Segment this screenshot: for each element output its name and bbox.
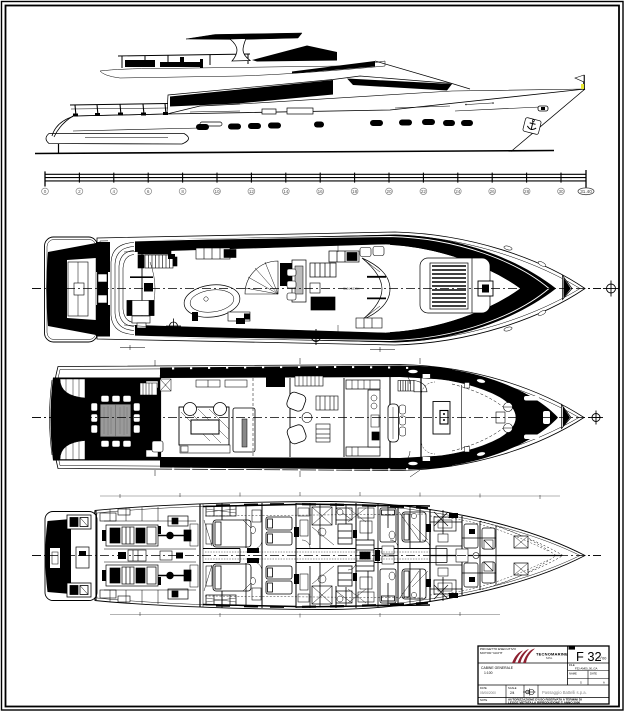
svg-text:FILE: FILE: [569, 663, 575, 667]
svg-text:NAME: NAME: [569, 672, 577, 676]
svg-text:DATE: DATE: [590, 672, 597, 676]
svg-text:Passaggio Battelli s.p.a.: Passaggio Battelli s.p.a.: [542, 690, 587, 695]
svg-text:26: 26: [490, 189, 496, 194]
svg-text:SUN DECK: SUN DECK: [343, 287, 360, 291]
svg-text:16: 16: [318, 189, 324, 194]
svg-text:12: 12: [249, 189, 255, 194]
svg-text:S.P.A.: S.P.A.: [546, 657, 553, 660]
svg-text:DATE: DATE: [480, 686, 487, 690]
svg-text:F32-AM00_00_GA: F32-AM00_00_GA: [575, 667, 598, 671]
svg-text:1:100: 1:100: [484, 671, 493, 675]
svg-text:05/06/2000: 05/06/2000: [480, 691, 496, 695]
svg-text:20: 20: [386, 189, 392, 194]
svg-text:30: 30: [558, 189, 564, 194]
svg-text:22: 22: [421, 189, 427, 194]
svg-text:8: 8: [181, 189, 184, 194]
svg-text:n°00: n°00: [599, 657, 607, 661]
svg-text:TECNOMARINE: TECNOMARINE: [536, 652, 568, 657]
svg-text:2: 2: [78, 189, 81, 194]
svg-text:4: 4: [113, 189, 116, 194]
svg-text:CABINE GENERALE: CABINE GENERALE: [481, 666, 514, 670]
svg-text:2/4: 2/4: [510, 691, 515, 695]
svg-text:NOTE: NOTE: [480, 698, 487, 702]
svg-text:A: A: [603, 681, 605, 685]
svg-text:S: S: [580, 681, 582, 685]
svg-text:14: 14: [283, 189, 289, 194]
svg-text:SCALE: SCALE: [508, 686, 517, 690]
svg-text:31.40: 31.40: [580, 189, 592, 194]
svg-text:6: 6: [147, 189, 150, 194]
svg-text:LEGGE VIETATA LA RIPRODUZIONE: LEGGE VIETATA LA RIPRODUZIONE © ANNO 200…: [508, 701, 580, 705]
svg-text:24: 24: [455, 189, 461, 194]
svg-text:28: 28: [524, 189, 530, 194]
svg-text:10: 10: [214, 189, 220, 194]
svg-text:18: 18: [352, 189, 358, 194]
svg-text:0: 0: [44, 189, 47, 194]
svg-text:MOTOR YACHT: MOTOR YACHT: [480, 651, 503, 655]
